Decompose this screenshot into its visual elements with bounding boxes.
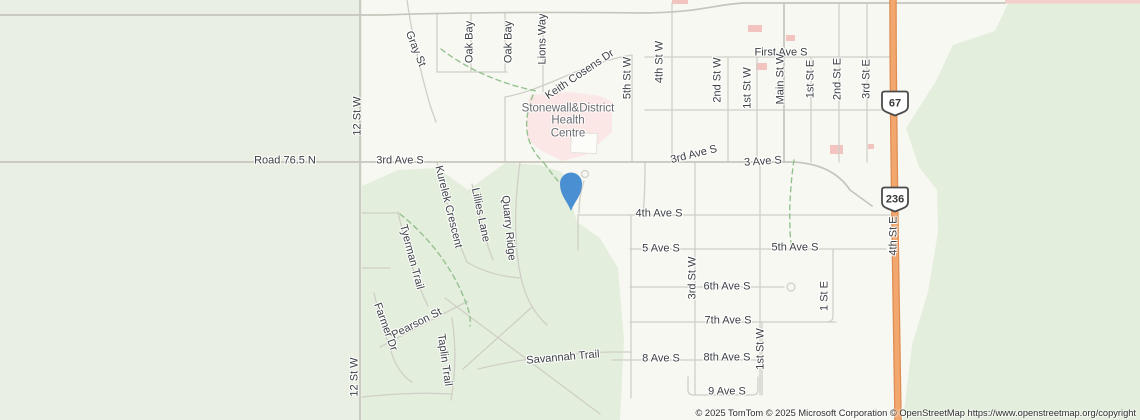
street-label: 4th St W [655, 41, 666, 83]
street-label: 6th Ave S [704, 282, 751, 293]
street-label: 8 Ave S [642, 354, 680, 365]
street-label: 5th Ave S [772, 243, 819, 254]
health-centre-line2: Health [522, 115, 615, 127]
building-footprints [672, 0, 874, 154]
street-label: Main St W [776, 54, 787, 105]
street-label: Oak Bay [465, 21, 476, 63]
street-label: 8th Ave S [704, 353, 751, 364]
street-label: 5 Ave S [642, 244, 680, 255]
street-label: 2nd St W [713, 57, 724, 102]
street-label: 3rd St E [862, 59, 873, 99]
street-label: 12 St W [350, 357, 361, 396]
map-attribution[interactable]: © 2025 TomTom © 2025 Microsoft Corporati… [696, 408, 1137, 418]
street-label: 9 Ave S [708, 387, 746, 398]
street-label: 1st St W [743, 67, 754, 109]
street-label: 4th Ave S [636, 209, 683, 220]
greenery-left-band [0, 0, 362, 420]
pink-strip-topright [1005, 0, 1140, 4]
street-label: Oak Bay [504, 21, 515, 63]
street-label: Lions Way [538, 14, 549, 65]
location-pin-shape[interactable] [560, 173, 582, 212]
highway-shield: 67 [879, 88, 911, 118]
street-label: 7th Ave S [705, 316, 752, 327]
street-label: 2nd St E [833, 58, 844, 100]
street-label: 12 St W [353, 96, 364, 135]
health-centre-label: Stonewall&District Health Centre [522, 102, 615, 139]
highway-shield: 236 [879, 184, 911, 214]
health-centre-line3: Centre [522, 127, 615, 139]
greenery-right [903, 3, 1140, 420]
street-label: Road 76.5 N [254, 156, 316, 167]
street-label: 1 St E [820, 281, 831, 311]
street-label: 1st St E [806, 60, 817, 99]
street-label: 1st St W [756, 328, 767, 370]
health-centre-line1: Stonewall&District [522, 102, 615, 114]
shield-number: 67 [889, 98, 901, 110]
street-label: 5th St W [623, 57, 634, 99]
map-canvas[interactable]: Stonewall&District Health Centre Gray St… [0, 0, 1140, 420]
location-pin[interactable] [556, 166, 586, 213]
street-label: 3rd Ave S [376, 156, 424, 167]
street-label: 4th St E [889, 216, 900, 255]
street-label: 3rd St W [688, 257, 699, 300]
shield-number: 236 [886, 194, 904, 206]
